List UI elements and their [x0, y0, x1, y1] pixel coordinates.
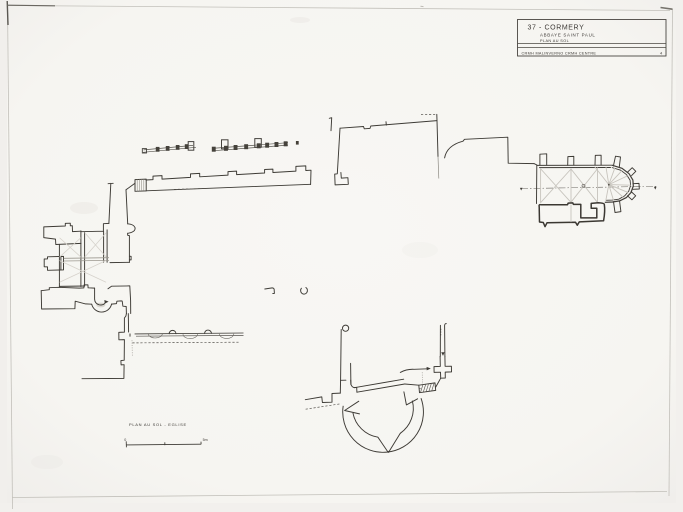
svg-text:5m: 5m [203, 438, 208, 442]
svg-text:0: 0 [124, 438, 126, 442]
svg-text:ABBAYE SAINT PAUL: ABBAYE SAINT PAUL [540, 33, 596, 38]
svg-text:PLAN AU SOL - EGLISE: PLAN AU SOL - EGLISE [129, 422, 187, 427]
svg-text:CRMH MALINVERNO CRMH: CRMH MALINVERNO CRMH CENTRE [522, 51, 597, 55]
svg-text:37 - CORMERY: 37 - CORMERY [528, 25, 585, 32]
svg-text:PLAN AU SOL: PLAN AU SOL [540, 39, 569, 43]
